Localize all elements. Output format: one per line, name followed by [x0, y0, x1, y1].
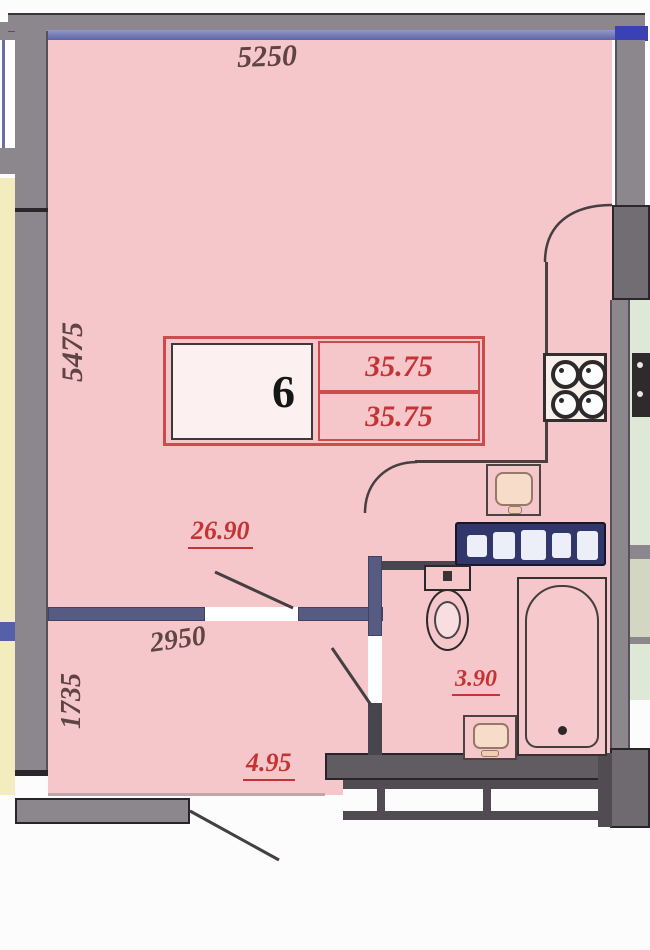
adjacent-window-blue — [0, 622, 15, 641]
kitchen-sink-basin — [495, 472, 533, 506]
wall-left-joint — [15, 208, 48, 212]
adjacent-wall-line — [630, 637, 650, 644]
bathtub-inner — [525, 585, 599, 748]
toilet-tank-button — [443, 571, 452, 581]
wall-right-block — [612, 205, 650, 300]
kitchen-sink-faucet — [508, 506, 522, 514]
toilet-bowl-inner — [434, 601, 461, 639]
wall-bath-left-upper — [368, 556, 382, 636]
wall-right-mid — [610, 300, 630, 753]
adjacent-counter — [630, 559, 650, 637]
wall-top-inner-navy — [46, 30, 617, 40]
floor-plan: 6 35.75 35.75 5250 5475 2950 1735 26.90 … — [0, 0, 650, 950]
washbasin-basin — [473, 723, 509, 749]
washbasin-faucet — [481, 750, 499, 757]
left-window-glass — [2, 40, 5, 148]
dimension-hall-height: 1735 — [56, 651, 88, 751]
left-window-frame-bottom — [0, 148, 15, 174]
wall-bath-left-lower — [368, 703, 382, 755]
bathtub-drain — [558, 726, 567, 735]
hallway-area-label: 4.95 — [243, 748, 295, 781]
window-bottom-end — [598, 753, 612, 827]
kitchen-sink-icon — [486, 464, 541, 516]
stove-burner — [551, 360, 580, 389]
window-bottom-mullion — [483, 780, 491, 820]
adjacent-room-yellow — [0, 178, 15, 795]
vanity-fixture — [493, 532, 515, 559]
washbasin-icon — [463, 715, 517, 760]
wall-top-right-blue — [615, 26, 648, 41]
toilet-icon — [424, 565, 471, 653]
living-room-area-label: 26.90 — [188, 516, 253, 549]
wall-hall-living-left — [48, 607, 205, 621]
stove-burner — [551, 390, 580, 419]
wall-left-cap — [15, 770, 48, 776]
bath-door-opening — [368, 636, 382, 703]
room-area-top: 35.75 — [365, 350, 433, 384]
room-number-cell: 6 — [171, 343, 313, 440]
room-label-box: 6 35.75 35.75 — [163, 336, 485, 446]
wall-right-top — [615, 40, 645, 205]
room-number: 6 — [272, 365, 295, 418]
dimension-top-width: 5250 — [211, 38, 322, 76]
wall-entrance — [15, 798, 190, 824]
vanity-fixture — [552, 533, 571, 558]
room-area-bottom: 35.75 — [365, 400, 433, 434]
wall-bottom-right-block — [610, 748, 650, 828]
wall-left — [15, 31, 48, 776]
adjacent-stove-dot — [637, 362, 643, 368]
window-bottom-mullion — [377, 780, 385, 820]
adjacent-stove-dot — [637, 391, 643, 397]
vanity-icon — [455, 522, 606, 566]
adjacent-stove — [632, 353, 650, 417]
stove-burner — [578, 390, 607, 419]
entrance-door-leaf — [190, 811, 279, 860]
bathtub-icon — [517, 577, 607, 756]
dimension-left-height: 5475 — [56, 302, 90, 402]
bathroom-area-label: 3.90 — [452, 666, 500, 696]
hall-threshold — [48, 793, 325, 796]
room-area-cell-bottom: 35.75 — [318, 392, 480, 441]
room-area-cell-top: 35.75 — [318, 341, 480, 392]
vanity-fixture — [521, 530, 546, 560]
adjacent-wall-band — [630, 545, 650, 559]
stove-burner — [578, 360, 607, 389]
vanity-fixture — [467, 535, 487, 557]
stove-icon — [543, 353, 607, 422]
vanity-fixture — [577, 531, 598, 560]
kitchen-niche-line — [415, 460, 548, 463]
